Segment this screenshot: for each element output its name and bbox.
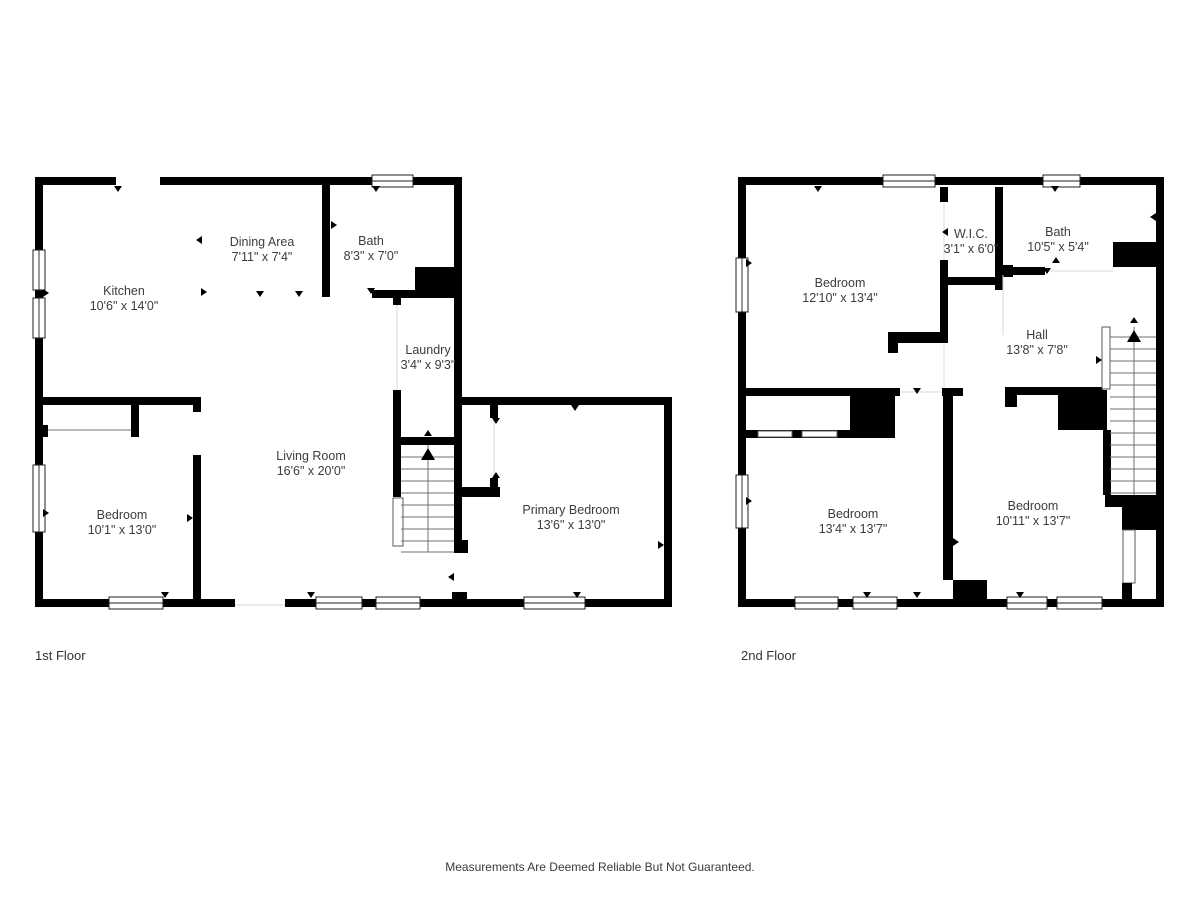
room-dims: 10'6" x 14'0"	[90, 299, 159, 314]
room-label-bedroom-3: Bedroom 13'4" x 13'7"	[819, 507, 888, 537]
room-name: Bath	[344, 234, 399, 249]
room-name: Laundry	[401, 343, 456, 358]
room-name: Bedroom	[88, 508, 157, 523]
room-name: Bath	[1027, 225, 1089, 240]
caption-second-floor: 2nd Floor	[741, 648, 796, 663]
room-label-dining-area: Dining Area 7'11" x 7'4"	[230, 235, 295, 265]
room-name: Bedroom	[819, 507, 888, 522]
room-label-bedroom-1: Bedroom 10'1" x 13'0"	[88, 508, 157, 538]
stairs-up-arrow	[424, 430, 432, 436]
room-dims: 3'1" x 6'0"	[944, 242, 999, 257]
stairs-up-arrow	[1130, 317, 1138, 323]
room-label-living-room: Living Room 16'6" x 20'0"	[276, 449, 345, 479]
first-floor-stairs	[393, 430, 454, 552]
floorplan-page: Kitchen 10'6" x 14'0" Dining Area 7'11" …	[0, 0, 1200, 900]
room-dims: 7'11" x 7'4"	[230, 250, 295, 265]
room-dims: 12'10" x 13'4"	[802, 291, 878, 306]
room-name: Hall	[1006, 328, 1068, 343]
room-dims: 10'5" x 5'4"	[1027, 240, 1089, 255]
room-label-kitchen: Kitchen 10'6" x 14'0"	[90, 284, 159, 314]
room-dims: 10'1" x 13'0"	[88, 523, 157, 538]
room-name: Bedroom	[996, 499, 1071, 514]
room-dims: 13'4" x 13'7"	[819, 522, 888, 537]
room-label-bath-1: Bath 8'3" x 7'0"	[344, 234, 399, 264]
room-label-bedroom-4: Bedroom 10'11" x 13'7"	[996, 499, 1071, 529]
room-dims: 13'8" x 7'8"	[1006, 343, 1068, 358]
second-floor-plan: Bedroom 12'10" x 13'4" W.I.C. 3'1" x 6'0…	[738, 177, 1164, 608]
caption-first-floor: 1st Floor	[35, 648, 86, 663]
room-name: Dining Area	[230, 235, 295, 250]
room-name: W.I.C.	[944, 227, 999, 242]
room-label-laundry: Laundry 3'4" x 9'3"	[401, 343, 456, 373]
room-dims: 8'3" x 7'0"	[344, 249, 399, 264]
first-floor-plan: Kitchen 10'6" x 14'0" Dining Area 7'11" …	[35, 177, 672, 608]
room-label-bath-2: Bath 10'5" x 5'4"	[1027, 225, 1089, 255]
room-label-bedroom-2: Bedroom 12'10" x 13'4"	[802, 276, 878, 306]
room-name: Living Room	[276, 449, 345, 464]
room-dims: 10'11" x 13'7"	[996, 514, 1071, 529]
room-label-hall: Hall 13'8" x 7'8"	[1006, 328, 1068, 358]
room-dims: 16'6" x 20'0"	[276, 464, 345, 479]
room-dims: 3'4" x 9'3"	[401, 358, 456, 373]
room-label-primary-bedroom: Primary Bedroom 13'6" x 13'0"	[522, 503, 619, 533]
disclaimer: Measurements Are Deemed Reliable But Not…	[0, 860, 1200, 874]
room-name: Kitchen	[90, 284, 159, 299]
room-dims: 13'6" x 13'0"	[522, 518, 619, 533]
room-name: Primary Bedroom	[522, 503, 619, 518]
room-name: Bedroom	[802, 276, 878, 291]
room-label-wic: W.I.C. 3'1" x 6'0"	[944, 227, 999, 257]
